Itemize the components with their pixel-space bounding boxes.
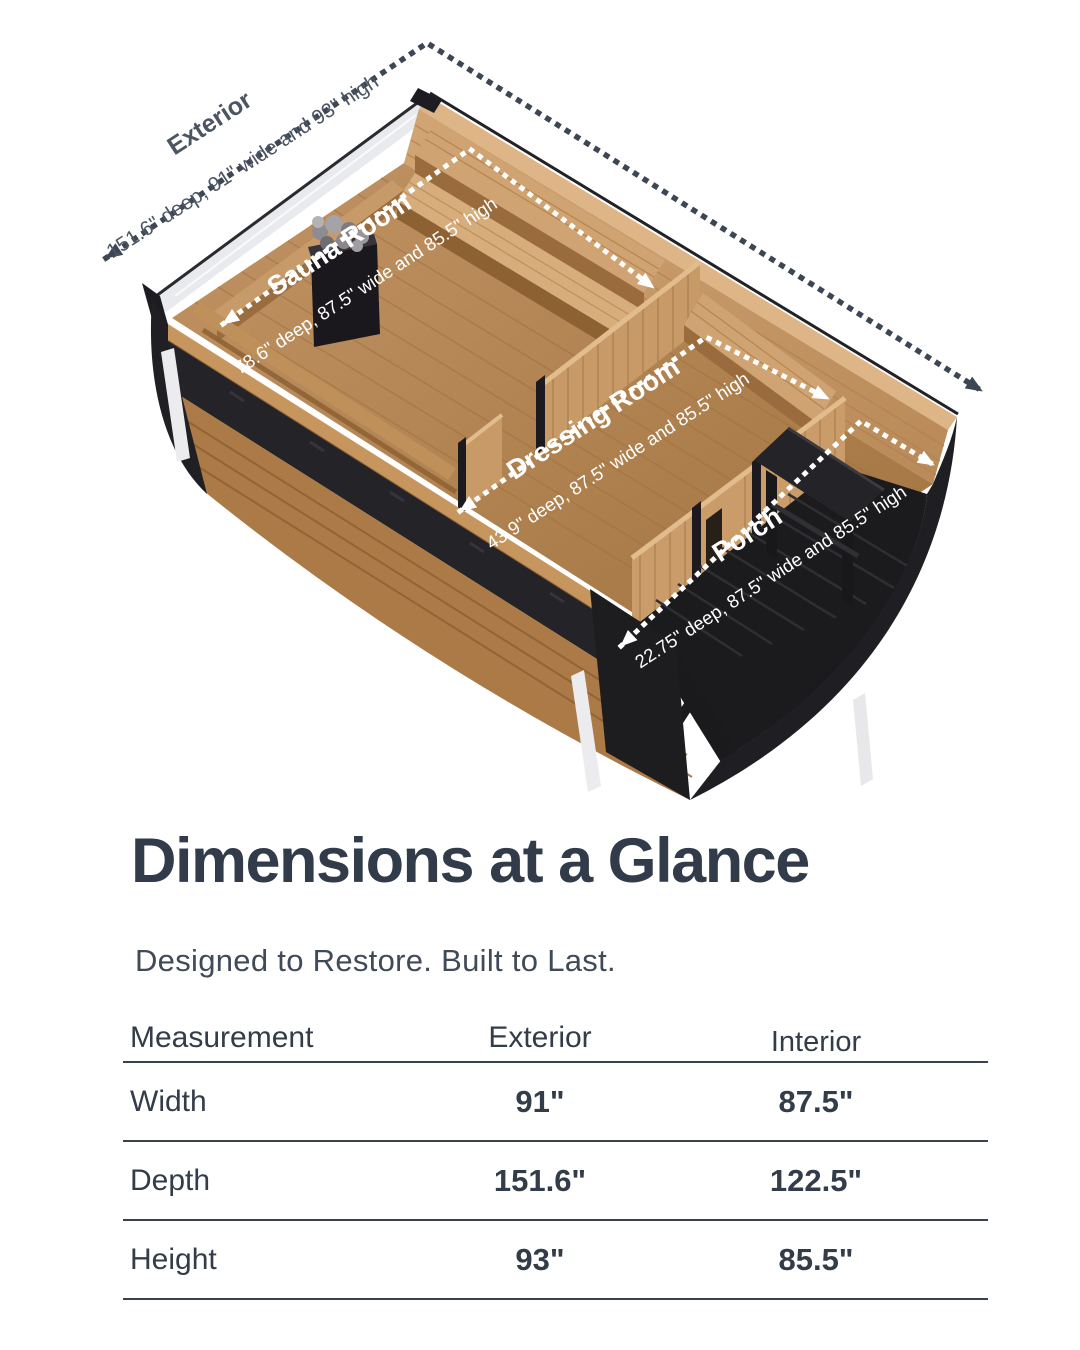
dimensions-table: Measurement Exterior Interior Width 91" …	[123, 1015, 988, 1300]
sauna-dimensions-hero: Exterior 151.6" deep, 91" wide and 93" h…	[0, 0, 1080, 812]
depth-interior-value: 122.5"	[680, 1163, 988, 1199]
table-header-row: Measurement Exterior Interior	[123, 1015, 988, 1061]
row-label: Width	[123, 1085, 400, 1119]
row-label: Height	[123, 1243, 400, 1277]
column-header-interior: Interior	[680, 1026, 988, 1059]
sauna-dimensions-illustration: Exterior 151.6" deep, 91" wide and 93" h…	[0, 0, 1080, 812]
table-row-depth: Depth 151.6" 122.5"	[123, 1140, 988, 1219]
column-header-measurement: Measurement	[123, 1021, 400, 1055]
trim-strap	[853, 693, 873, 786]
height-exterior-value: 93"	[400, 1242, 680, 1278]
depth-exterior-value: 151.6"	[400, 1163, 680, 1199]
width-interior-value: 87.5"	[680, 1084, 988, 1120]
table-row-height: Height 93" 85.5"	[123, 1219, 988, 1300]
table-row-width: Width 91" 87.5"	[123, 1061, 988, 1140]
page-title: Dimensions at a Glance	[131, 830, 1080, 892]
width-exterior-value: 91"	[400, 1084, 680, 1120]
exterior-label: Exterior	[162, 86, 257, 161]
tagline: Designed to Restore. Built to Last.	[135, 945, 1080, 976]
height-interior-value: 85.5"	[680, 1242, 988, 1278]
row-label: Depth	[123, 1164, 400, 1198]
column-header-exterior: Exterior	[400, 1021, 680, 1055]
